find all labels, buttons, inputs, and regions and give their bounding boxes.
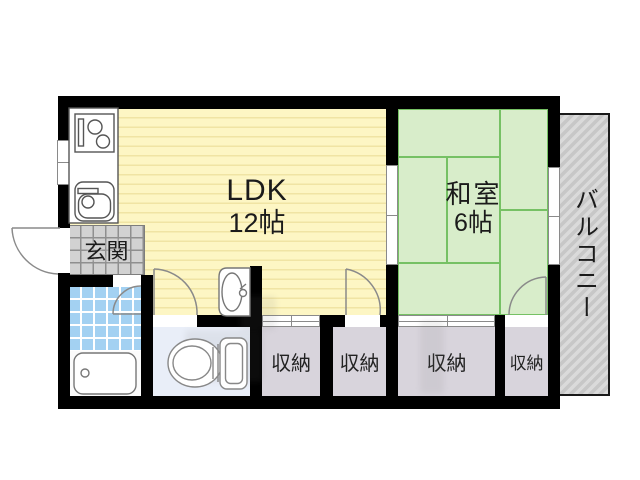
japanese-room-name: 和室: [406, 180, 541, 209]
floor-plan: バルコニー 玄関 収納 収納 収納 収納: [0, 0, 640, 480]
toilet-icon: [168, 338, 247, 389]
ldk-name: LDK: [187, 174, 327, 208]
japanese-room-label: 和室 6帖: [406, 180, 541, 237]
washbasin-icon: [219, 268, 250, 316]
ldk-label: LDK 12帖: [187, 174, 327, 238]
bathroom-door-swing: [113, 286, 141, 314]
kitchen-sink-icon: [75, 182, 114, 221]
closet-4-door-swing: [509, 277, 546, 315]
ldk-size: 12帖: [187, 208, 327, 238]
fixtures-layer: [0, 0, 640, 480]
kitchen-counter: [69, 108, 118, 223]
toilet-door-swing: [154, 269, 197, 315]
stove-icon: [75, 114, 114, 152]
bathtub-icon: [74, 353, 136, 394]
entry-door-swing: [12, 228, 60, 274]
closet-2-door-swing: [346, 269, 380, 315]
japanese-room-size: 6帖: [406, 209, 541, 237]
